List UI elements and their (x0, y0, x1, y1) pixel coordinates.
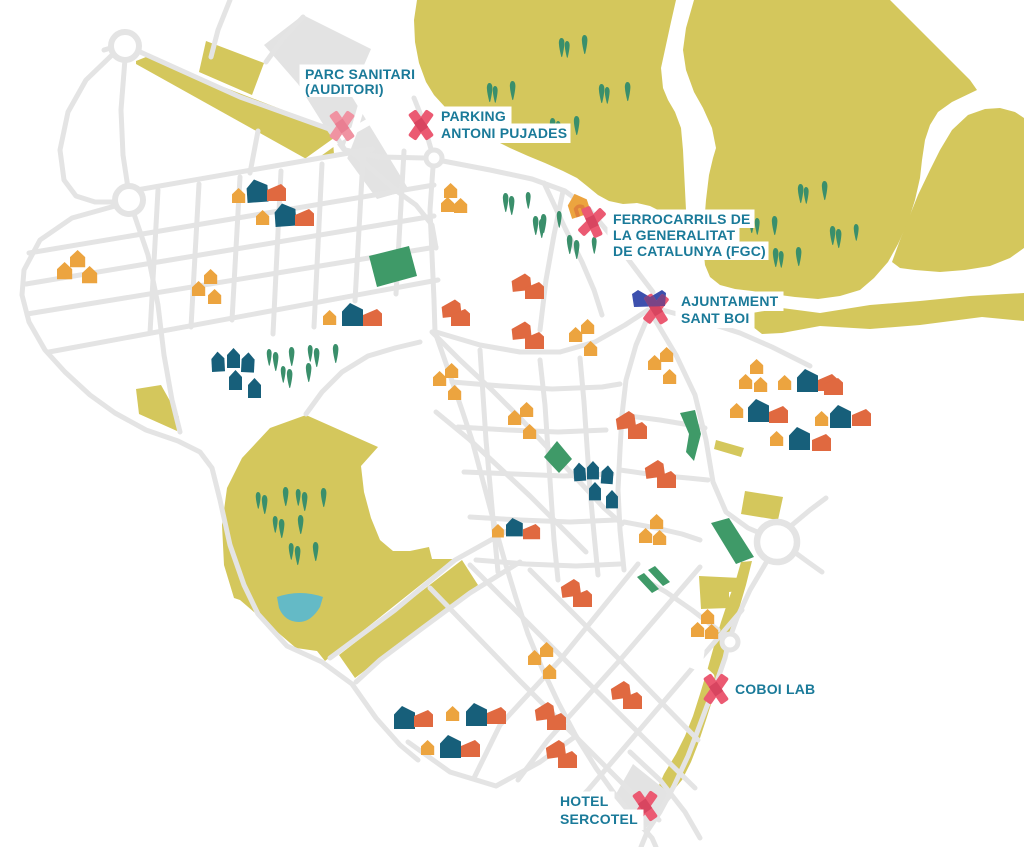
svg-text:SERCOTEL: SERCOTEL (560, 811, 638, 827)
svg-text:HOTEL: HOTEL (560, 793, 609, 809)
svg-text:COBOI LAB: COBOI LAB (735, 681, 815, 697)
svg-text:PARKING: PARKING (441, 108, 506, 124)
svg-text:DE CATALUNYA (FGC): DE CATALUNYA (FGC) (613, 243, 766, 259)
svg-text:FERROCARRILS DE: FERROCARRILS DE (613, 211, 751, 227)
svg-text:ANTONI PUJADES: ANTONI PUJADES (441, 125, 567, 141)
svg-text:SANT BOI: SANT BOI (681, 310, 750, 326)
svg-text:(AUDITORI): (AUDITORI) (305, 81, 384, 97)
svg-text:LA GENERALITAT: LA GENERALITAT (613, 227, 736, 243)
svg-text:AJUNTAMENT: AJUNTAMENT (681, 293, 779, 309)
svg-text:PARC SANITARI: PARC SANITARI (305, 66, 415, 82)
